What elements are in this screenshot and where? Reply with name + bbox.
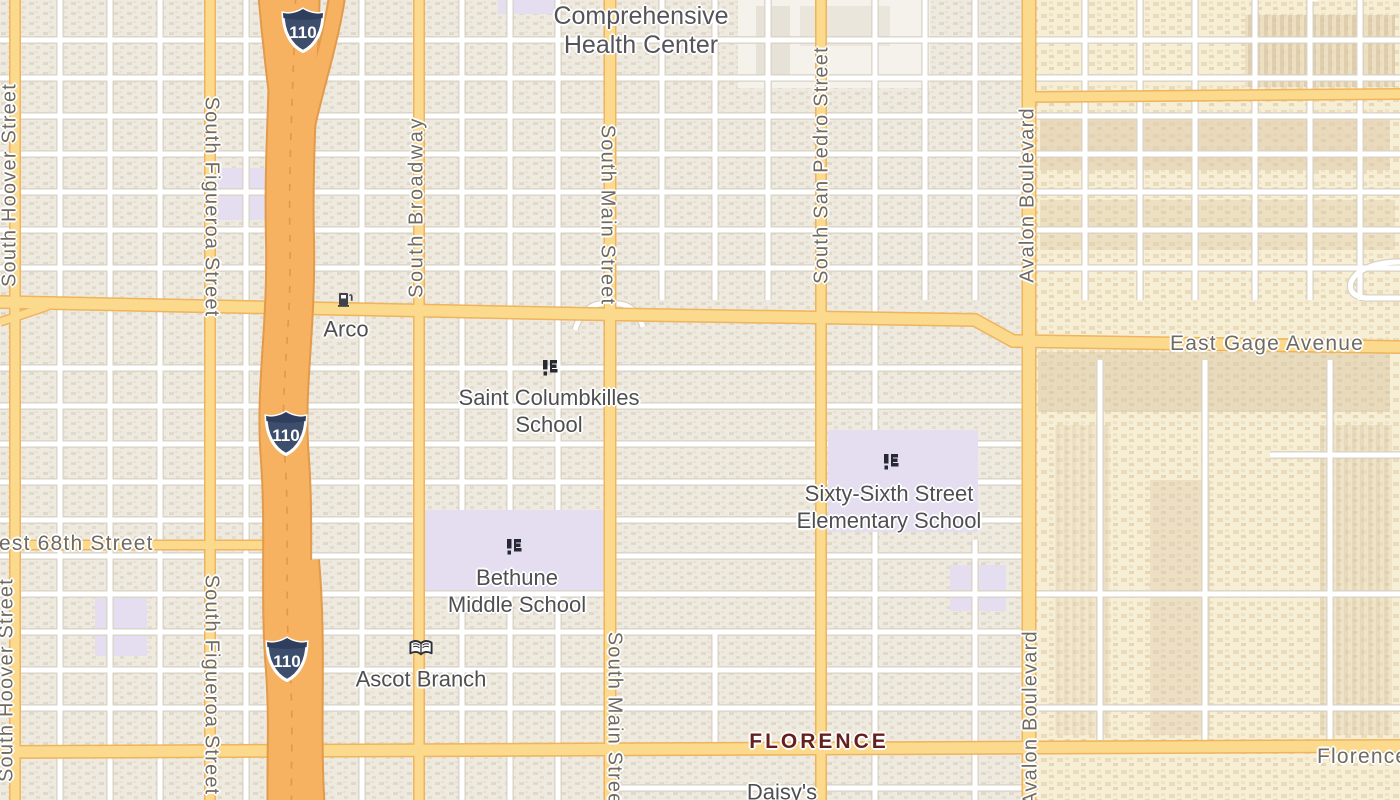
svg-text:110: 110 xyxy=(289,23,316,42)
svg-text:110: 110 xyxy=(273,652,300,671)
street-label-avalon-boulevard: Avalon Boulevard xyxy=(1017,107,1040,283)
street-label-avalon-boulevard: Avalon Boulevard xyxy=(1020,630,1043,800)
poi-label-sixty-sixth-street-elementary[interactable]: Sixty-Sixth Street Elementary School xyxy=(797,480,982,534)
interstate-110-shield: 110 xyxy=(281,7,325,53)
street-label-south-broadway: South Broadway xyxy=(406,116,429,298)
poi-line: Elementary School xyxy=(797,507,982,534)
street-label-68th-street: West 68th Street xyxy=(0,532,154,556)
poi-line: Sixty-Sixth Street xyxy=(797,480,982,507)
open-book-icon[interactable] xyxy=(408,639,434,657)
svg-text:110: 110 xyxy=(272,426,299,445)
street-label-south-hoover: South Hoover Street xyxy=(0,578,19,782)
map-canvas[interactable]: 110 110 110 South Hoover Street South Ho… xyxy=(0,0,1400,800)
school-icon[interactable] xyxy=(503,536,525,558)
interstate-110-shield: 110 xyxy=(264,410,308,456)
poi-label-ascot-branch[interactable]: Ascot Branch xyxy=(356,666,487,693)
interstate-110-shield: 110 xyxy=(265,636,309,682)
poi-label-daisys[interactable]: Daisy's xyxy=(747,779,817,800)
poi-line: Saint Columbkilles xyxy=(459,384,640,411)
poi-label-saint-columbkilles-school[interactable]: Saint Columbkilles School xyxy=(459,384,640,438)
street-label-south-main: South Main Street xyxy=(603,632,626,800)
poi-line: Health Center xyxy=(553,31,728,60)
school-icon[interactable] xyxy=(539,357,561,379)
street-label-south-san-pedro: South San Pedro Street xyxy=(811,46,834,284)
poi-label-northgate-market[interactable]: Northgate Market xyxy=(1250,0,1400,1)
street-label-south-hoover: South Hoover Street xyxy=(0,83,22,287)
poi-label-arco[interactable]: Arco xyxy=(323,316,368,343)
poi-line: Bethune xyxy=(448,564,586,591)
street-label-east-gage-avenue: East Gage Avenue xyxy=(1170,332,1364,356)
street-label-south-figueroa: South Figueroa Street xyxy=(200,97,223,318)
school-icon[interactable] xyxy=(880,451,902,473)
street-label-florence-avenue: Florence Avenue xyxy=(1317,745,1400,769)
poi-label-bethune-middle-school[interactable]: Bethune Middle School xyxy=(448,564,586,618)
street-label-south-main: South Main Street xyxy=(596,125,619,306)
poi-line: School xyxy=(459,411,640,438)
gas-pump-icon[interactable] xyxy=(336,289,356,309)
poi-line: Comprehensive xyxy=(553,2,728,31)
street-label-south-figueroa: South Figueroa Street xyxy=(200,575,223,796)
neighborhood-label-florence: FLORENCE xyxy=(749,730,889,754)
poi-label-comprehensive-health-center[interactable]: Comprehensive Health Center xyxy=(553,2,728,60)
poi-line: Middle School xyxy=(448,591,586,618)
